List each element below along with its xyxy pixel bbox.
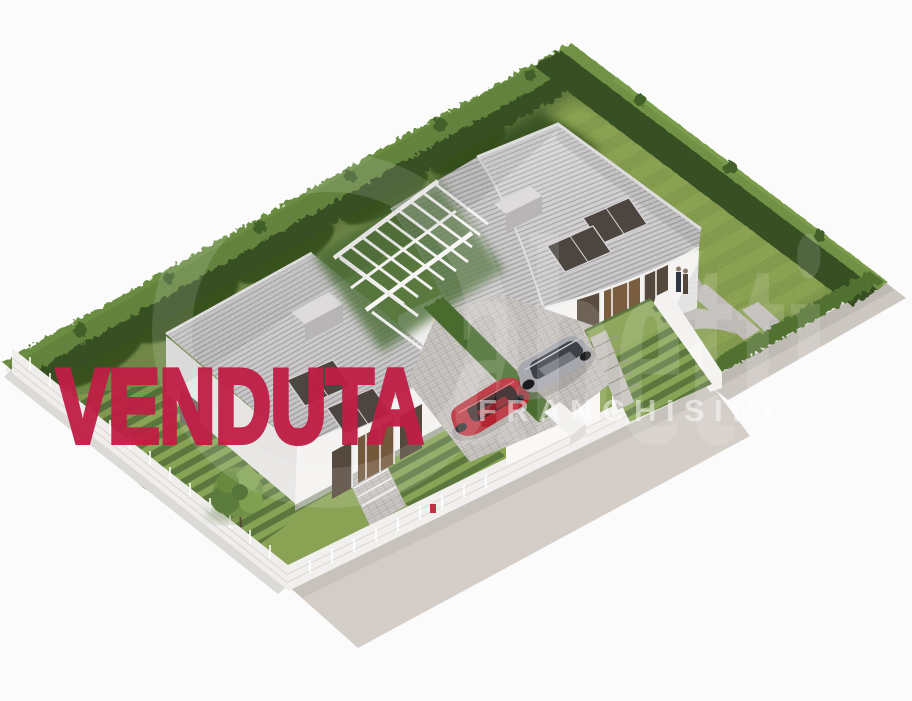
svg-text:VENDUTA: VENDUTA: [57, 349, 423, 465]
svg-text:FRANCHISING: FRANCHISING: [478, 393, 798, 428]
svg-text:abetti: abetti: [450, 175, 830, 507]
